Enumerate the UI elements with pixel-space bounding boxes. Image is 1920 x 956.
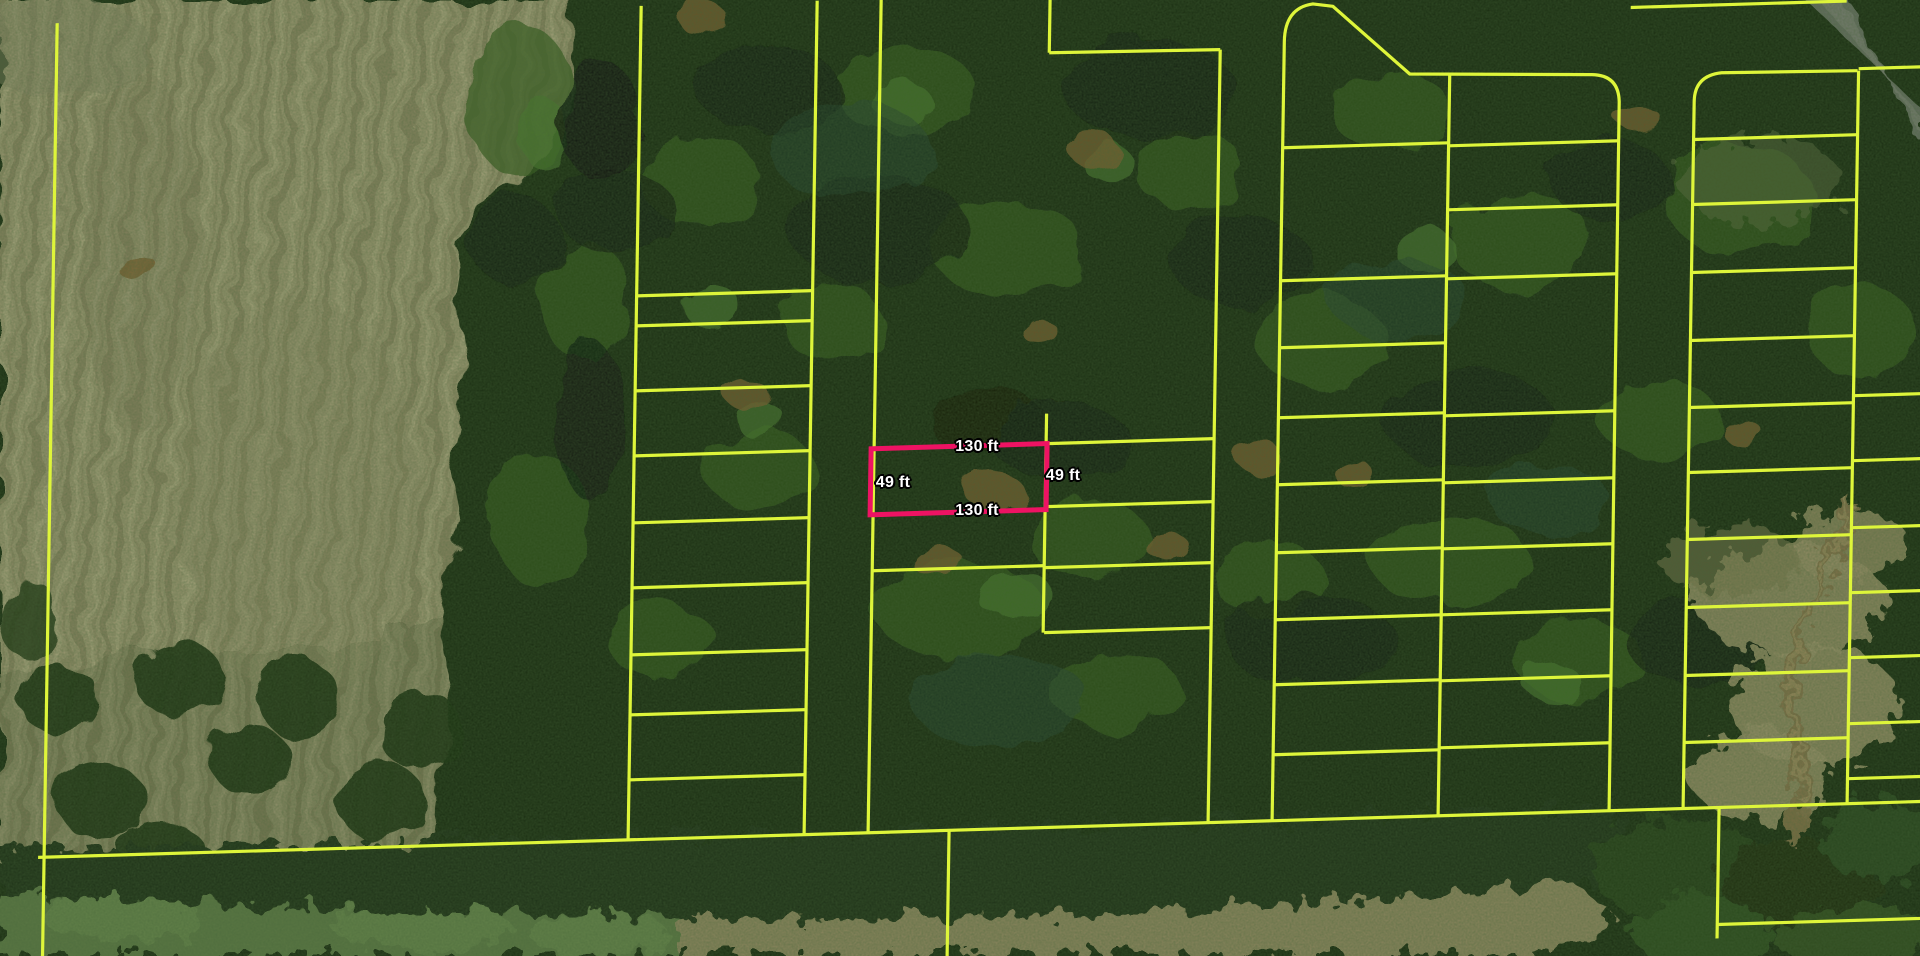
parcel-boundary-line <box>1049 0 1050 53</box>
terrain-layer <box>0 0 1920 956</box>
map-viewport[interactable]: 130 ft49 ft49 ft130 ft <box>0 0 1920 956</box>
parcel-boundary-line <box>1717 807 1719 938</box>
parcel-boundary-line <box>947 830 949 956</box>
satellite-map[interactable] <box>0 0 1920 956</box>
